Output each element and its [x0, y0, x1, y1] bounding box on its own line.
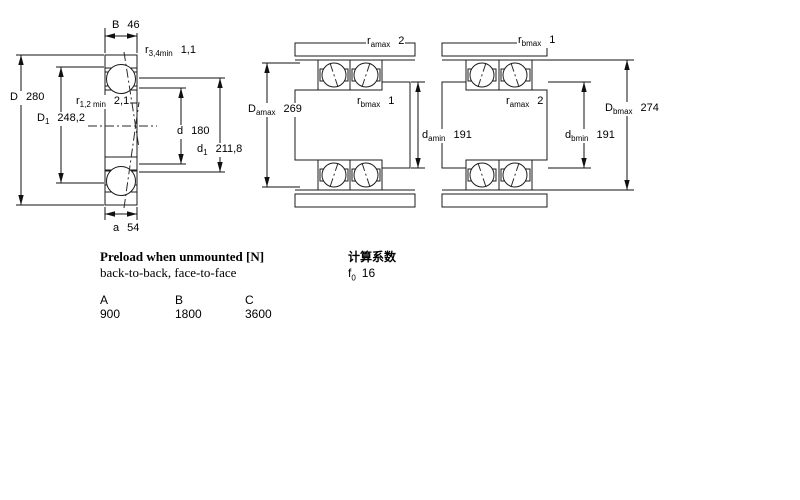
dim-label-Damax: Damax269	[247, 103, 303, 117]
dim-label-d1: d1211,8	[196, 143, 243, 157]
dim-label-Dbmax: Dbmax274	[604, 102, 660, 116]
dim-label-ramax-b: ramax2	[505, 95, 544, 109]
preload-col-a-header: A	[100, 293, 108, 307]
preload-value-b: 1800	[175, 307, 202, 321]
housing-bottom	[442, 194, 547, 207]
dim-label-d: d180	[176, 125, 210, 139]
preload-title: Preload when unmounted [N]	[100, 250, 264, 264]
figure-face-to-face-pair	[442, 43, 634, 207]
bearing-drawings	[0, 0, 800, 345]
dim-label-B: B46	[111, 19, 141, 33]
preload-value-c: 3600	[245, 307, 272, 321]
bearing-ball	[107, 65, 136, 94]
preload-col-b-header: B	[175, 293, 183, 307]
dim-label-a: a54	[112, 222, 140, 236]
housing-bottom	[295, 194, 415, 207]
dim-label-rbmax-b: rbmax1	[517, 34, 556, 48]
dim-label-rbmax-a: rbmax1	[356, 95, 395, 109]
figure-back-to-back-pair	[262, 43, 425, 207]
dim-label-damin: damin191	[421, 129, 473, 143]
dim-label-r34: r3,4min1,1	[144, 44, 197, 58]
dim-label-D1: D1248,2	[36, 112, 86, 126]
bearing-drawing-page: B46 r3,4min1,1 D280 D1248,2 r1,2 min2,1 …	[0, 0, 800, 500]
preload-col-c-header: C	[245, 293, 254, 307]
dim-label-D: D280	[9, 91, 45, 105]
bearing-ball	[107, 167, 136, 196]
preload-value-a: 900	[100, 307, 120, 321]
dim-label-ramax-a: ramax2	[366, 35, 405, 49]
dim-label-dbmin: dbmin191	[564, 129, 616, 143]
preload-subtitle: back-to-back, face-to-face	[100, 266, 236, 280]
dim-label-r12: r1,2 min2,1	[75, 95, 130, 109]
calc-factor-title: 计算系数	[348, 250, 396, 264]
f0-label: f016	[347, 267, 376, 282]
